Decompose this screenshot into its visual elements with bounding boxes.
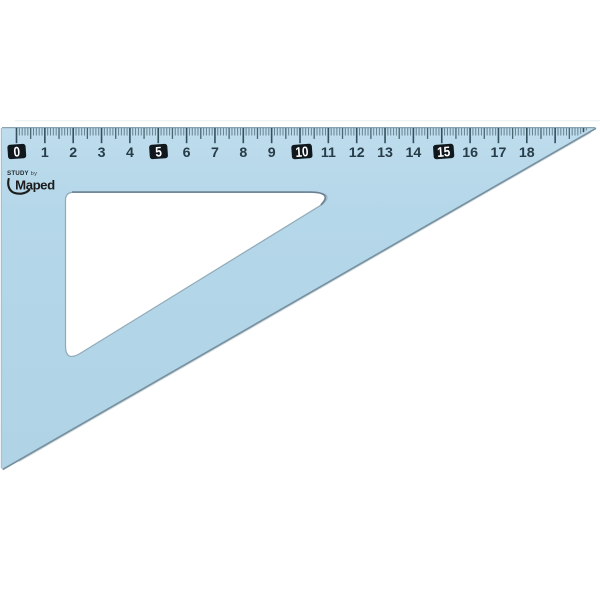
svg-text:3: 3 <box>98 145 106 161</box>
svg-text:18: 18 <box>519 145 535 161</box>
svg-text:9: 9 <box>268 145 276 161</box>
svg-text:15: 15 <box>437 143 451 160</box>
svg-text:6: 6 <box>183 145 191 161</box>
svg-text:0: 0 <box>13 143 21 160</box>
svg-text:12: 12 <box>349 145 365 161</box>
svg-text:13: 13 <box>377 145 393 161</box>
svg-text:17: 17 <box>491 145 507 161</box>
svg-text:STUDY by: STUDY by <box>7 170 37 177</box>
svg-text:Maped: Maped <box>15 178 55 193</box>
svg-text:4: 4 <box>126 145 134 161</box>
svg-text:1: 1 <box>41 145 49 161</box>
svg-text:2: 2 <box>69 145 77 161</box>
svg-text:14: 14 <box>406 145 422 161</box>
svg-text:8: 8 <box>239 145 247 161</box>
svg-text:10: 10 <box>295 143 309 160</box>
svg-text:5: 5 <box>155 143 163 160</box>
svg-text:7: 7 <box>211 145 219 161</box>
svg-text:16: 16 <box>462 145 478 161</box>
svg-text:11: 11 <box>321 145 336 161</box>
